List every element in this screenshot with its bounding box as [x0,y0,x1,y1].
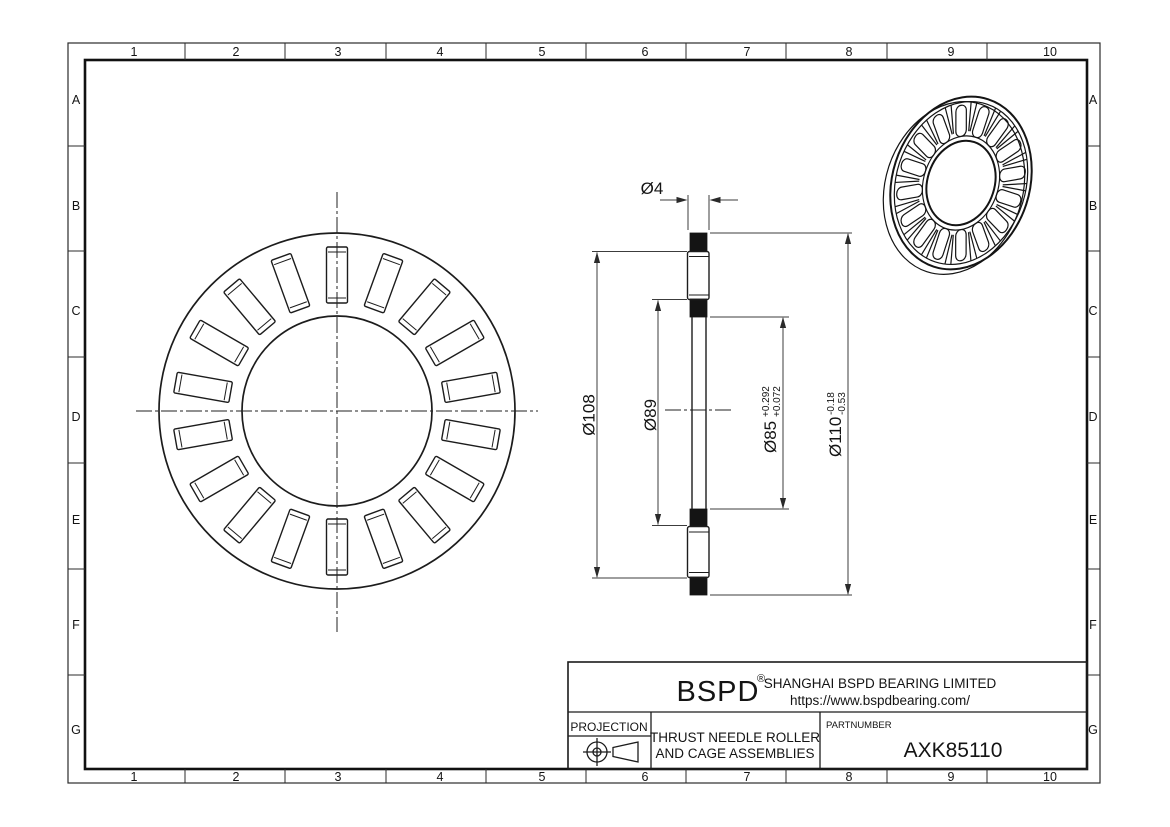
grid-col-label: 2 [233,45,240,59]
iso-ring [869,78,1054,288]
grid-col-label: 10 [1043,45,1057,59]
cage-section-bottom-outer [690,577,707,595]
grid-col-label: 4 [437,45,444,59]
section-roller-bottom [688,527,710,578]
partnumber-value: AXK85110 [904,739,1003,762]
dim-roller-diameter: Ø4 [641,179,664,198]
grid-row-label: E [1089,513,1097,527]
drawing-sheet: 1 2 3 4 5 6 7 8 9 10 1 2 3 4 5 6 7 8 9 1… [0,0,1170,827]
grid-row-label: C [71,304,80,318]
grid-col-label: 10 [1043,770,1057,784]
grid-col-label: 8 [846,45,853,59]
grid-row-label: G [71,723,81,737]
grid-row-label: B [1089,199,1097,213]
grid-col-label: 1 [131,770,138,784]
grid-row-label: A [1089,93,1098,107]
product-title-line2: AND CAGE ASSEMBLIES [655,746,814,761]
grid-row-label: G [1088,723,1098,737]
title-block: BSPD ® SHANGHAI BSPD BEARING LIMITED htt… [568,662,1087,769]
cage-section-top-inner [690,299,707,317]
grid-col-label: 6 [642,45,649,59]
grid-column-labels-bottom: 1 2 3 4 5 6 7 8 9 10 [131,770,1057,784]
dim-bore-tol-lower: +0.072 [772,386,783,417]
extension-lines [592,195,852,595]
grid-row-label: D [1088,410,1097,424]
section-roller-top [688,252,710,300]
dim-outside-group: Ø110 -0.18 -0.53 [826,392,848,457]
grid-row-label: A [72,93,81,107]
front-view [136,192,538,632]
grid-row-label: C [1088,304,1097,318]
grid-col-label: 2 [233,770,240,784]
dim-cage-outer: Ø108 [580,394,599,436]
company-name: SHANGHAI BSPD BEARING LIMITED [764,676,997,691]
cage-section-top-outer [690,233,707,251]
grid-row-label: B [72,199,80,213]
dim-bore-nominal: Ø85 [761,421,780,453]
first-angle-projection-icon [583,738,638,766]
grid-col-label: 8 [846,770,853,784]
dim-outside-nominal: Ø110 [826,417,845,457]
grid-col-label: 7 [744,45,751,59]
grid-row-label: E [72,513,80,527]
partnumber-label: PARTNUMBER [826,720,892,731]
grid-row-labels-left: A B C D E F G [71,93,81,737]
grid-row-label: F [72,618,80,632]
grid-col-label: 5 [539,45,546,59]
grid-col-label: 9 [948,770,955,784]
dim-outside-tol-lower: -0.53 [837,392,848,415]
grid-col-label: 9 [948,45,955,59]
grid-col-label: 3 [335,45,342,59]
brand-logo: BSPD [677,676,760,708]
iso-view [862,78,1054,293]
drawing-canvas: 1 2 3 4 5 6 7 8 9 10 1 2 3 4 5 6 7 8 9 1… [0,0,1170,827]
grid-column-labels-top: 1 2 3 4 5 6 7 8 9 10 [131,45,1057,59]
dim-bore-tol-upper: +0.292 [761,386,772,417]
grid-col-label: 4 [437,770,444,784]
dimension-lines [594,197,851,595]
grid-col-label: 1 [131,45,138,59]
section-view: Ø4 Ø108 Ø89 Ø85 +0.292 +0.072 Ø110 -0.18… [580,179,853,595]
dim-outside-tol-upper: -0.18 [826,392,837,415]
grid-col-label: 3 [335,770,342,784]
grid-col-label: 6 [642,770,649,784]
product-title-line1: THRUST NEEDLE ROLLER [650,730,820,745]
grid-col-label: 7 [744,770,751,784]
grid-row-labels-right: A B C D E F G [1088,93,1098,737]
grid-row-label: D [71,410,80,424]
grid-col-label: 5 [539,770,546,784]
iso-back-rim [862,83,1047,293]
company-website: https://www.bspdbearing.com/ [790,693,970,708]
dim-cage-inner: Ø89 [641,399,660,431]
grid-row-label: F [1089,618,1097,632]
cage-section-bottom-inner [690,509,707,526]
projection-label: PROJECTION [570,720,647,734]
dim-bore-group: Ø85 +0.292 +0.072 [761,386,783,453]
